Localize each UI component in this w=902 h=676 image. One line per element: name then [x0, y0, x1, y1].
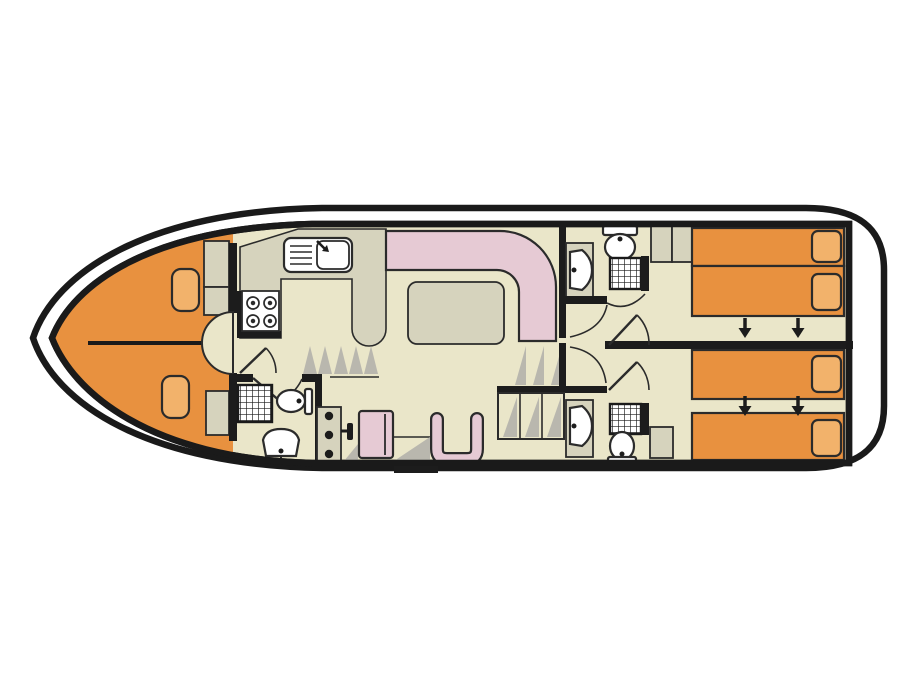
- lobby-wall: [559, 343, 566, 390]
- stair-head-wall: [497, 386, 607, 393]
- pillow: [172, 269, 199, 311]
- washbasin: [570, 406, 592, 446]
- bow-wardrobe: [204, 241, 229, 287]
- gauge-icon: [325, 450, 333, 458]
- boat-floor-plan-canvas: [0, 0, 902, 676]
- wardrobe: [651, 226, 672, 262]
- toilet: [277, 389, 312, 414]
- shower-wall-stub: [641, 256, 649, 291]
- gauge-icon: [325, 431, 333, 439]
- bow-bulkhead-lower: [229, 373, 237, 441]
- shower: [610, 258, 641, 289]
- pillow: [812, 420, 841, 456]
- washbasin: [570, 250, 592, 290]
- floor-plan-svg: [0, 0, 902, 676]
- shower: [610, 404, 641, 434]
- pillow: [812, 231, 841, 262]
- wardrobe: [672, 226, 693, 262]
- boarding-door-mark: [394, 466, 438, 473]
- gauge-icon: [325, 412, 333, 420]
- cabin-divider-wall: [605, 341, 853, 349]
- pillow: [812, 274, 841, 310]
- pillow: [812, 356, 841, 392]
- cabinet: [650, 427, 673, 458]
- bench-seat: [359, 411, 393, 458]
- bathroom-wall: [230, 374, 253, 382]
- toilet: [603, 226, 637, 260]
- saloon-aft-wall: [559, 224, 566, 338]
- shower: [238, 385, 272, 422]
- bow-cabinet: [206, 391, 229, 435]
- pillow: [162, 376, 189, 418]
- washbasin: [263, 429, 299, 461]
- bow-bulkhead-upper: [229, 243, 237, 313]
- bathroom-wall: [559, 296, 607, 304]
- dining-table: [408, 282, 504, 344]
- bow-wardrobe: [204, 287, 229, 315]
- stove-front-panel: [237, 331, 281, 338]
- shower-wall-stub: [641, 403, 649, 435]
- saloon: [386, 231, 556, 344]
